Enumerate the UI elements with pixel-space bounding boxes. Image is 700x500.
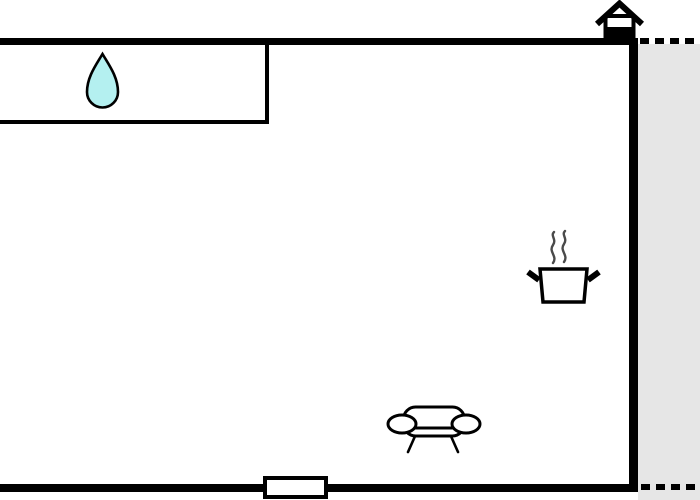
sofa-armrest-left — [388, 415, 416, 433]
floor-plan — [0, 0, 700, 500]
bathroom-wall-right — [265, 45, 269, 124]
wall-top — [0, 38, 638, 45]
floor-plan-canvas — [0, 0, 700, 500]
pot-body — [540, 269, 587, 302]
terrace-area — [638, 44, 700, 500]
window-symbol — [265, 478, 326, 497]
wall-right — [629, 38, 638, 492]
house-base — [605, 27, 634, 37]
sofa-armrest-right — [452, 415, 480, 433]
bathroom-wall-bottom — [0, 120, 269, 124]
